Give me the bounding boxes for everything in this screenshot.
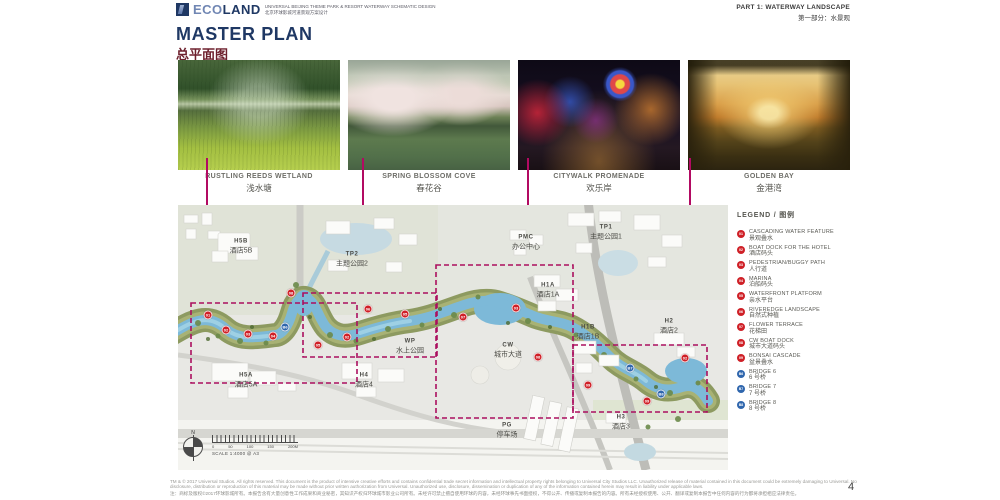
legend-item: 03 PEDESTRIAN/BUGGY PATH 人行道	[737, 260, 859, 273]
legend-item: 08 CW BOAT DOCK 城市大道码头	[737, 338, 859, 351]
map-marker: 08	[287, 289, 296, 298]
map-label: PMC 办公中心	[512, 235, 540, 252]
legend-marker-icon: 07	[737, 323, 745, 331]
disclaimer-zh: 注：商标及版权©2017环球影城所有。本报告含有大量创意性工作成果和商业秘密，其…	[170, 491, 858, 497]
legend-marker-icon: 09	[737, 354, 745, 362]
header-logo: ECOLAND UNIVERSAL BEIJING THEME PARK & R…	[176, 3, 436, 16]
legend-item: 02 BOAT DOCK FOR THE HOTEL 酒店码头	[737, 245, 859, 258]
logo-subtitle-en: UNIVERSAL BEIJING THEME PARK & RESORT WA…	[265, 4, 436, 10]
scale-text: SCALE 1:4000 @ A3	[212, 451, 298, 456]
map-label: CW 城市大道	[494, 343, 522, 360]
scale-bar: 050100150200M SCALE 1:4000 @ A3	[212, 435, 298, 456]
ecoland-logo-icon	[176, 3, 189, 16]
photo-3-name-zh: 欢乐岸	[518, 182, 680, 194]
map-label: WP 水上公园	[396, 339, 424, 356]
north-arrow: N	[182, 430, 204, 457]
logo-subtitle: UNIVERSAL BEIJING THEME PARK & RESORT WA…	[265, 3, 436, 15]
photo-spring-blossom-cove	[348, 60, 510, 170]
legend-list: 01 CASCADING WATER FEATURE 景观叠水 02 BOAT …	[737, 229, 859, 413]
legend-item: B7 BRIDGE 7 7 号桥	[737, 384, 859, 397]
photo-label-4: GOLDEN BAY 金港湾	[688, 173, 850, 194]
master-plan-map: H5B 酒店5B TP2 主题公园2 PMC 办公中心 TP1 主题公园1 H1…	[178, 205, 728, 470]
legend-item: 07 FLOWER TERRACE 花梯田	[737, 322, 859, 335]
map-marker: 02	[222, 326, 231, 335]
map-label: H1A 酒店1A	[537, 283, 560, 300]
photo-4-name-zh: 金港湾	[688, 182, 850, 194]
part-header: PART 1: WATERWAY LANDSCAPE 第一部分：水景观	[736, 4, 850, 22]
map-marker: 03	[512, 304, 521, 313]
map-label: H1B 酒店1B	[577, 325, 600, 342]
photo-rustling-reeds-wetland	[178, 60, 340, 170]
part-title-zh: 第一部分：水景观	[736, 12, 850, 22]
legend-marker-icon: B6	[737, 370, 745, 378]
legend-marker-icon: 03	[737, 261, 745, 269]
legend-item: B6 BRIDGE 6 6 号桥	[737, 369, 859, 382]
map-marker: 05	[314, 341, 323, 350]
map-label: H3 酒店3	[612, 415, 630, 432]
map-marker: 09	[643, 397, 652, 406]
map-marker: 05	[401, 310, 410, 319]
legend-marker-icon: 04	[737, 277, 745, 285]
footer-disclaimer: TM & © 2017 Universal Studios. All right…	[170, 479, 858, 496]
part-title-en: PART 1: WATERWAY LANDSCAPE	[736, 4, 850, 11]
photo-1-name-en: RUSTLING REEDS WETLAND	[178, 173, 340, 180]
legend-marker-icon: 02	[737, 246, 745, 254]
map-marker: 04	[269, 332, 278, 341]
map-marker: B6	[281, 323, 290, 332]
map-label: PG 停车场	[497, 423, 518, 440]
map-label: H5A 酒店5A	[235, 373, 258, 390]
photo-citywalk-promenade	[518, 60, 680, 170]
page-title: MASTER PLAN	[176, 24, 313, 45]
map-marker: 02	[343, 333, 352, 342]
legend-marker-icon: 06	[737, 308, 745, 316]
legend-marker-icon: B7	[737, 385, 745, 393]
map-marker: B8	[657, 390, 666, 399]
scale-tick-labels: 050100150200M	[212, 444, 298, 449]
legend-marker-icon: 05	[737, 292, 745, 300]
logo-eco-text: ECO	[193, 2, 223, 17]
map-label: H2 酒店2	[660, 319, 678, 336]
photo-golden-bay	[688, 60, 850, 170]
logo-subtitle-zh: 北京环球影城河道景观方案设计	[265, 10, 436, 16]
map-label: TP2 主题公园2	[336, 252, 368, 269]
legend-item: 05 WATERFRONT PLATFORM 亲水平台	[737, 291, 859, 304]
photo-label-1: RUSTLING REEDS WETLAND 浅水塘	[178, 173, 340, 194]
compass-icon	[183, 437, 203, 457]
photo-3-name-en: CITYWALK PROMENADE	[518, 173, 680, 180]
legend-item: 01 CASCADING WATER FEATURE 景观叠水	[737, 229, 859, 242]
legend-marker-icon: 08	[737, 339, 745, 347]
logo-land-text: LAND	[223, 2, 261, 17]
legend-item: B8 BRIDGE 8 8 号桥	[737, 400, 859, 413]
map-overlay: H5B 酒店5B TP2 主题公园2 PMC 办公中心 TP1 主题公园1 H1…	[178, 205, 728, 470]
legend-title: LEGEND / 图例	[737, 210, 859, 220]
legend-item: 09 BONSAI CASCADE 盆景叠水	[737, 353, 859, 366]
ecoland-wordmark: ECOLAND	[193, 3, 261, 16]
map-marker: B7	[626, 364, 635, 373]
photo-label-3: CITYWALK PROMENADE 欢乐岸	[518, 173, 680, 194]
photo-2-name-en: SPRING BLOSSOM COVE	[348, 173, 510, 180]
photo-4-name-en: GOLDEN BAY	[688, 173, 850, 180]
map-marker: 06	[364, 305, 373, 314]
map-marker: 03	[244, 330, 253, 339]
legend: LEGEND / 图例 01 CASCADING WATER FEATURE 景…	[737, 210, 859, 415]
scale-ruler	[212, 435, 298, 443]
legend-item: 04 MARINA 泊船码头	[737, 276, 859, 289]
slide-page: ECOLAND UNIVERSAL BEIJING THEME PARK & R…	[0, 0, 1000, 500]
photo-2-name-zh: 春花谷	[348, 182, 510, 194]
page-number: 4	[848, 481, 854, 493]
map-label: H4 酒店4	[355, 373, 373, 390]
legend-marker-icon: B8	[737, 401, 745, 409]
map-marker: 01	[204, 311, 213, 320]
disclaimer-en-2: disclosure, distribution or reproduction…	[170, 484, 858, 489]
map-marker: 07	[459, 313, 468, 322]
map-label: TP1 主题公园1	[590, 225, 622, 242]
map-marker: 08	[534, 353, 543, 362]
legend-marker-icon: 01	[737, 230, 745, 238]
legend-item: 06 RIVEREDGE LANDSCAPE 自然式种植	[737, 307, 859, 320]
photo-1-name-zh: 浅水塘	[178, 182, 340, 194]
photo-label-2: SPRING BLOSSOM COVE 春花谷	[348, 173, 510, 194]
map-label: H5B 酒店5B	[230, 239, 253, 256]
map-marker: 09	[584, 381, 593, 390]
map-marker: 02	[681, 354, 690, 363]
